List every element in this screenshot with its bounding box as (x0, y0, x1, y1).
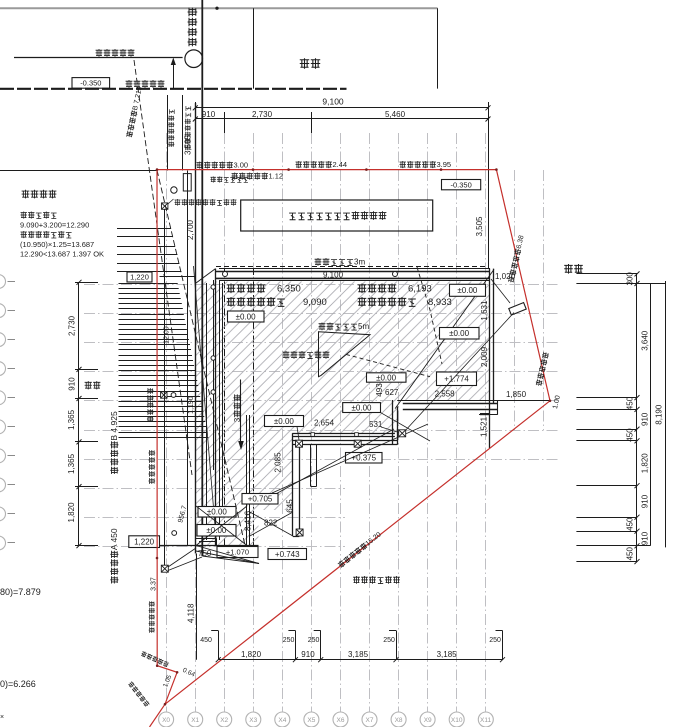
svg-text:±0.00: ±0.00 (457, 286, 478, 295)
svg-text:0)=6.266: 0)=6.266 (0, 679, 36, 689)
svg-text:X7: X7 (366, 717, 374, 724)
svg-text:±0.00: ±0.00 (236, 312, 257, 321)
svg-text:X4: X4 (278, 717, 286, 724)
svg-text:2,009: 2,009 (480, 346, 489, 367)
svg-text:8,933: 8,933 (428, 297, 452, 308)
svg-text:1,220: 1,220 (134, 538, 155, 547)
svg-text:12.00: 12.00 (164, 326, 171, 344)
svg-text:250: 250 (383, 637, 395, 644)
svg-text:+1.774: +1.774 (444, 375, 469, 384)
svg-text:3m: 3m (354, 258, 365, 267)
svg-text:×: × (0, 714, 4, 721)
svg-text:-0.350: -0.350 (451, 180, 472, 189)
svg-text:8,190: 8,190 (654, 404, 663, 425)
svg-text:±0.00: ±0.00 (352, 403, 373, 412)
svg-text:X11: X11 (480, 717, 491, 724)
svg-text:12.290<13.687 1.397 OK: 12.290<13.687 1.397 OK (20, 250, 104, 259)
svg-text:X3: X3 (249, 717, 257, 724)
svg-text:493: 493 (375, 383, 384, 397)
svg-text:X1: X1 (191, 717, 199, 724)
svg-text:450: 450 (625, 396, 634, 410)
svg-text:3,185: 3,185 (437, 650, 458, 659)
svg-text:±0.00: ±0.00 (376, 373, 397, 382)
svg-text:X9: X9 (424, 717, 432, 724)
svg-text:1.12: 1.12 (269, 172, 284, 181)
svg-text:9.090+3.200=12.290: 9.090+3.200=12.290 (20, 221, 89, 230)
svg-text:9,100: 9,100 (322, 97, 344, 107)
svg-text:+0.375: +0.375 (351, 454, 376, 463)
svg-text:645: 645 (285, 499, 294, 513)
svg-text:X0: X0 (162, 717, 170, 724)
svg-text:1,631: 1,631 (480, 300, 489, 321)
svg-text:910: 910 (202, 110, 216, 119)
svg-text:5m: 5m (358, 322, 369, 331)
svg-text:8,416: 8,416 (243, 510, 252, 531)
svg-text:1,850: 1,850 (506, 390, 527, 399)
svg-text:910: 910 (301, 650, 315, 659)
svg-text:3,185: 3,185 (348, 650, 369, 659)
svg-text:910: 910 (640, 531, 649, 545)
svg-text:450: 450 (200, 637, 212, 644)
svg-text:X8: X8 (395, 717, 403, 724)
svg-text:6,193: 6,193 (408, 284, 432, 295)
svg-text:910: 910 (67, 377, 76, 391)
svg-text:1,521: 1,521 (479, 416, 488, 437)
svg-text:2,654: 2,654 (314, 419, 335, 428)
svg-text:450: 450 (625, 517, 634, 531)
svg-text:1,820: 1,820 (241, 650, 262, 659)
svg-text:1,365: 1,365 (67, 409, 76, 430)
svg-text:6,350: 6,350 (277, 284, 301, 295)
svg-text:2,730: 2,730 (67, 315, 76, 336)
svg-text:3,640: 3,640 (640, 330, 649, 351)
svg-text:1,820: 1,820 (640, 453, 649, 474)
svg-text:3,505: 3,505 (475, 216, 484, 237)
svg-text:2,558: 2,558 (435, 390, 456, 399)
svg-text:2,730: 2,730 (252, 110, 273, 119)
svg-text:9,090: 9,090 (303, 297, 327, 308)
svg-text:1,220: 1,220 (130, 273, 149, 282)
svg-text:±0.00: ±0.00 (274, 417, 295, 426)
svg-text:3.00: 3.00 (234, 161, 249, 170)
svg-text:3.37: 3.37 (151, 577, 158, 591)
svg-text:(10.950)×1.25=13.687: (10.950)×1.25=13.687 (20, 240, 94, 249)
svg-text:627: 627 (385, 388, 399, 397)
svg-text:X5: X5 (307, 717, 315, 724)
svg-text:450: 450 (625, 428, 634, 442)
svg-text:±0.00: ±0.00 (449, 329, 470, 338)
svg-text:B 4,925: B 4,925 (109, 411, 119, 441)
svg-text:910: 910 (640, 494, 649, 508)
svg-text:250: 250 (283, 637, 295, 644)
svg-text:A 450: A 450 (109, 528, 119, 550)
svg-text:450: 450 (625, 547, 634, 561)
svg-text:5,460: 5,460 (385, 110, 406, 119)
svg-text:+0.743: +0.743 (275, 550, 300, 559)
svg-text:1,820: 1,820 (67, 502, 76, 523)
svg-text:X6: X6 (337, 717, 345, 724)
svg-text:531: 531 (369, 420, 383, 429)
svg-text:2.44: 2.44 (333, 160, 348, 169)
svg-text:250: 250 (489, 637, 501, 644)
svg-text:X10: X10 (451, 717, 463, 724)
svg-text:3.95: 3.95 (437, 160, 452, 169)
svg-text:1,190: 1,190 (188, 396, 195, 414)
svg-text:±0.00: ±0.00 (207, 508, 228, 517)
svg-text:2,085: 2,085 (273, 452, 282, 473)
svg-text:250: 250 (308, 637, 320, 644)
svg-text:3,505: 3,505 (184, 134, 193, 155)
svg-text:+0.705: +0.705 (248, 495, 273, 504)
svg-text:4,118: 4,118 (186, 603, 195, 623)
svg-text:X2: X2 (220, 717, 228, 724)
svg-text:-0.350: -0.350 (80, 79, 101, 88)
svg-text:1,365: 1,365 (67, 453, 76, 474)
svg-text:910: 910 (640, 412, 649, 426)
svg-text:80)=7.879: 80)=7.879 (0, 587, 41, 597)
svg-text:300: 300 (625, 272, 634, 286)
svg-text:9,100: 9,100 (323, 271, 344, 280)
